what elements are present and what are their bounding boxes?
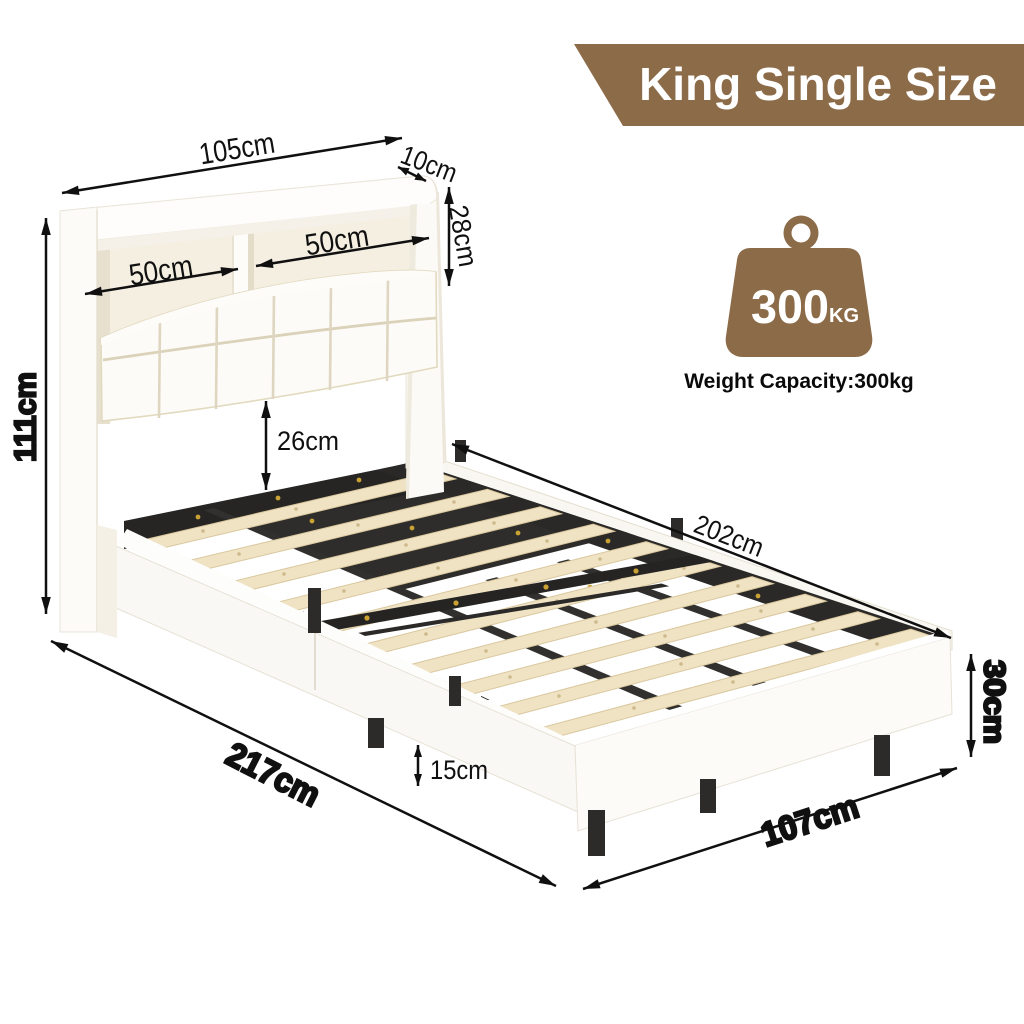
- svg-text:300: 300: [751, 280, 829, 333]
- svg-text:30cm: 30cm: [978, 660, 1011, 744]
- svg-text:105cm: 105cm: [197, 127, 277, 172]
- svg-text:15cm: 15cm: [430, 755, 488, 785]
- svg-text:217cm: 217cm: [220, 735, 326, 814]
- svg-text:26cm: 26cm: [277, 426, 339, 456]
- svg-text:111cm: 111cm: [8, 372, 43, 462]
- svg-text:KG: KG: [829, 305, 859, 327]
- svg-text:King Single Size: King Single Size: [639, 58, 997, 110]
- svg-text:Weight Capacity:300kg: Weight Capacity:300kg: [684, 370, 914, 393]
- svg-text:107cm: 107cm: [757, 787, 864, 854]
